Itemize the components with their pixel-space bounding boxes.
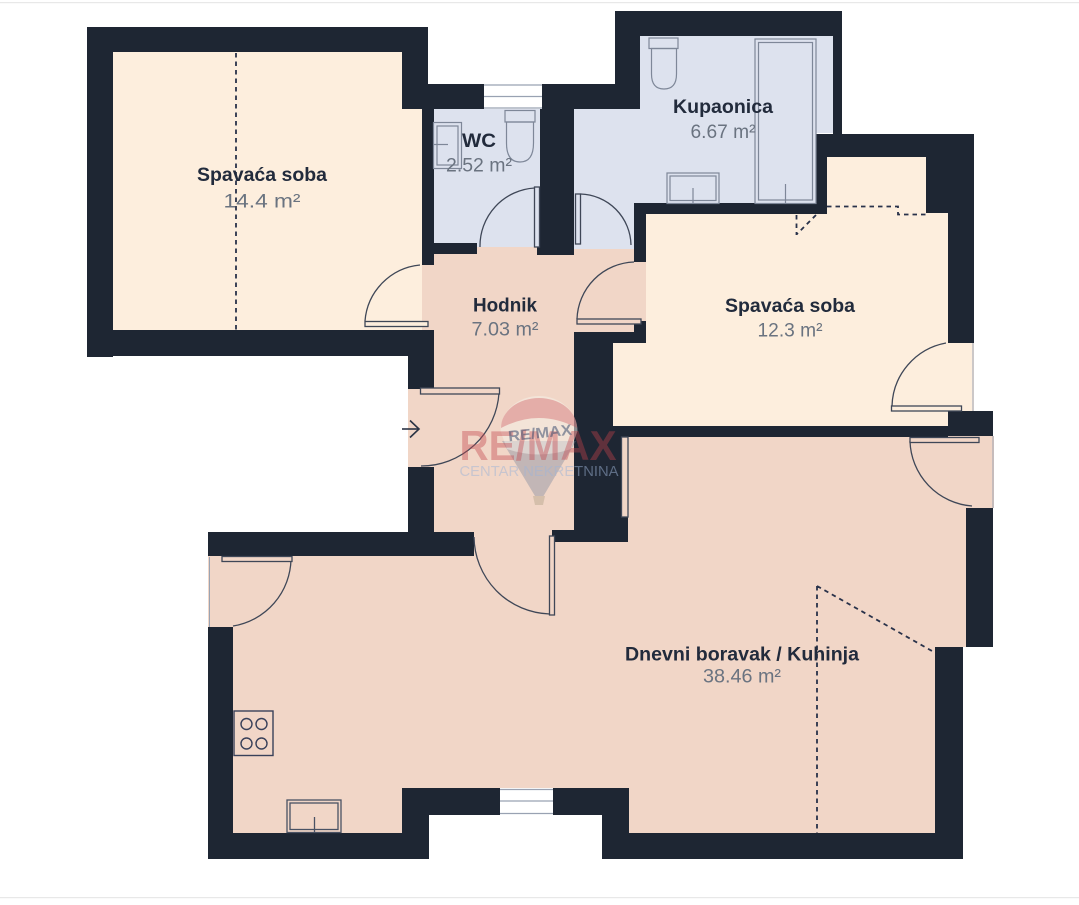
svg-text:2.52 m²: 2.52 m² [446, 156, 512, 177]
svg-text:Kupaonica: Kupaonica [673, 96, 773, 118]
svg-text:Spavaća soba: Spavaća soba [197, 164, 327, 186]
svg-text:WC: WC [462, 130, 496, 152]
svg-text:12.3 m²: 12.3 m² [758, 321, 823, 342]
svg-text:CENTAR NEKRETNINA: CENTAR NEKRETNINA [460, 463, 619, 480]
svg-text:7.03 m²: 7.03 m² [472, 320, 539, 341]
svg-text:14.4 m²: 14.4 m² [224, 192, 301, 213]
svg-text:Hodnik: Hodnik [473, 295, 537, 317]
svg-text:38.46 m²: 38.46 m² [703, 667, 781, 688]
svg-text:Spavaća soba: Spavaća soba [725, 295, 855, 317]
svg-text:6.67 m²: 6.67 m² [691, 122, 756, 143]
svg-text:Dnevni boravak / Kuhinja: Dnevni boravak / Kuhinja [625, 644, 859, 666]
